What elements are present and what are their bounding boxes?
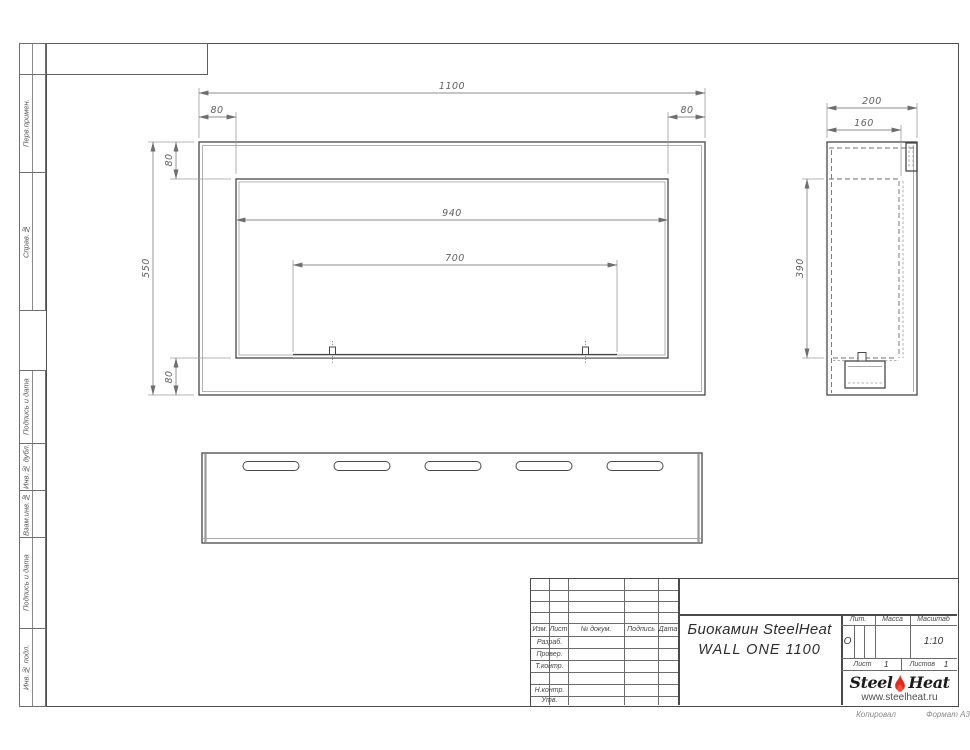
vent-slot-5 — [607, 462, 663, 471]
copied-label: Копировал — [840, 710, 912, 719]
dim-front-right-margin: 80 — [680, 105, 693, 116]
row-tkontr: Т.контр. — [531, 660, 568, 672]
row-utv: Утв. — [531, 696, 568, 705]
side-view — [827, 142, 917, 395]
sheets-label: Листов — [910, 661, 936, 668]
front-view-dimensions: 1100 80 80 550 80 80 940 700 — [141, 81, 705, 395]
steelheat-logo: Steel Heat www.steelheat.ru — [841, 670, 958, 705]
title-block: Изм. Лист № докум. Подпись Дата Разраб. … — [530, 578, 959, 707]
vent-slot-2 — [334, 462, 390, 471]
vent-slot-4 — [516, 462, 572, 471]
logo-heat-text: Heat — [908, 673, 949, 692]
row-nkontr: Н.контр. — [531, 684, 568, 696]
burner-clip-right — [583, 347, 589, 355]
dim-front-total-height: 550 — [141, 258, 152, 278]
mass-label: Масса — [875, 614, 910, 625]
sheets-value: 1 — [944, 659, 949, 669]
flame-icon — [893, 674, 907, 693]
col-izm: Изм. — [531, 623, 549, 636]
logo-steel-text: Steel — [850, 673, 893, 692]
front-view — [199, 142, 705, 395]
vent-slot-1 — [243, 462, 299, 471]
burner-clip-left — [330, 347, 336, 355]
dim-side-total-depth: 200 — [862, 96, 882, 107]
row-prover: Провер. — [531, 648, 568, 660]
dim-front-left-margin: 80 — [210, 105, 223, 116]
sheet-cell: Лист 1 — [841, 658, 901, 670]
dim-front-burner-width: 700 — [445, 253, 465, 264]
bottom-view — [202, 453, 702, 543]
dim-front-total-width: 1100 — [439, 81, 465, 92]
sheet-label: Лист — [853, 661, 871, 668]
scale-label: Масштаб — [910, 614, 957, 625]
side-top-bracket — [906, 143, 917, 171]
drawing-sheet: Перв.примен. Справ.№ Подпись и дата Инв.… — [0, 0, 970, 750]
lit-label: Лит. — [841, 614, 875, 625]
vent-slot-3 — [425, 462, 481, 471]
dim-front-top-margin: 80 — [164, 153, 175, 166]
col-data: Дата — [658, 623, 678, 636]
sheet-value: 1 — [884, 659, 889, 669]
logo-url: www.steelheat.ru — [861, 692, 937, 703]
dim-side-inner-depth: 160 — [854, 118, 874, 129]
dim-front-opening-width: 940 — [442, 208, 462, 219]
dim-side-inner-height: 390 — [795, 258, 806, 278]
dim-front-bottom-margin: 80 — [164, 370, 175, 383]
lit-value: О — [841, 625, 854, 658]
sheets-cell: Листов 1 — [901, 658, 957, 670]
document-title-line2: WALL ONE 1100 — [698, 642, 821, 658]
col-dokum: № докум. — [568, 623, 624, 636]
scale-value: 1:10 — [910, 625, 957, 658]
col-podpis: Подпись — [624, 623, 658, 636]
col-list: Лист — [549, 623, 568, 636]
document-title-line1: Биокамин SteelHeat — [687, 621, 831, 638]
document-title: Биокамин SteelHeat WALL ONE 1100 — [678, 614, 841, 705]
row-razrab: Разраб. — [531, 636, 568, 648]
side-burner-box — [845, 361, 885, 388]
format-label: Формат А3 — [915, 710, 970, 719]
